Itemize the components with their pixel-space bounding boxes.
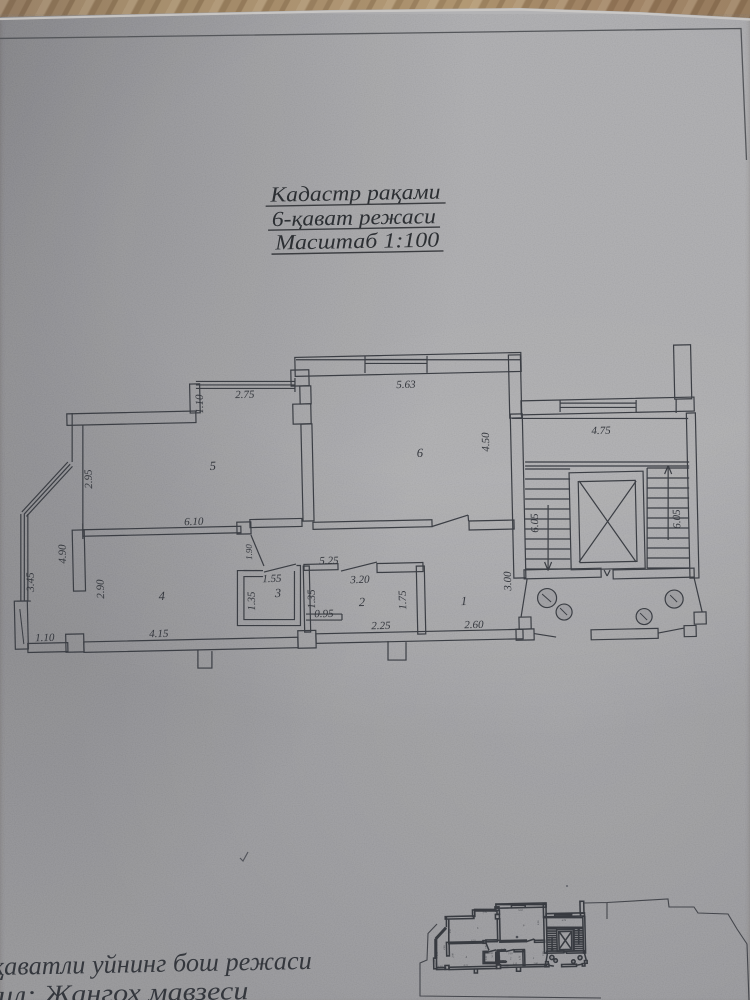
svg-text:зил: Жангох мавзеси: зил: Жангох мавзеси <box>0 976 249 1000</box>
svg-text:5: 5 <box>210 459 217 473</box>
svg-text:қаватли уйнинг бош режаси: қаватли уйнинг бош режаси <box>0 946 312 981</box>
svg-text:3.00: 3.00 <box>502 571 514 592</box>
svg-text:4.50: 4.50 <box>480 432 492 452</box>
svg-text:2.90: 2.90 <box>95 579 107 599</box>
svg-text:6.05: 6.05 <box>671 509 683 529</box>
svg-text:1.10: 1.10 <box>194 394 206 414</box>
svg-text:3.45: 3.45 <box>25 572 37 593</box>
svg-text:2.60: 2.60 <box>464 619 484 631</box>
svg-text:2: 2 <box>359 595 366 609</box>
svg-text:2.75: 2.75 <box>235 389 255 401</box>
svg-text:0.95: 0.95 <box>314 608 334 620</box>
svg-text:1.35: 1.35 <box>246 591 258 611</box>
svg-text:4.90: 4.90 <box>57 544 69 564</box>
svg-text:2.25: 2.25 <box>371 620 391 632</box>
svg-text:6: 6 <box>417 446 424 460</box>
svg-text:1.90: 1.90 <box>485 945 487 949</box>
svg-text:Масштаб 1:100: Масштаб 1:100 <box>274 228 440 255</box>
svg-text:Кадастр рақами: Кадастр рақами <box>269 180 441 207</box>
svg-text:3.20: 3.20 <box>349 574 370 586</box>
svg-text:4: 4 <box>159 589 166 603</box>
svg-text:1.35: 1.35 <box>306 589 318 609</box>
svg-text:4.15: 4.15 <box>149 628 169 640</box>
svg-text:1: 1 <box>461 594 468 608</box>
svg-text:4.75: 4.75 <box>591 425 611 437</box>
svg-text:6.05: 6.05 <box>529 513 541 533</box>
svg-text:5.25: 5.25 <box>319 555 339 567</box>
svg-text:1.10: 1.10 <box>35 632 55 644</box>
svg-text:1.55: 1.55 <box>262 573 282 585</box>
svg-text:1.90: 1.90 <box>244 544 254 560</box>
svg-text:5.63: 5.63 <box>396 379 416 391</box>
svg-text:2.95: 2.95 <box>83 469 95 489</box>
svg-text:3: 3 <box>274 586 282 600</box>
svg-text:6.10: 6.10 <box>184 516 204 528</box>
svg-text:1.75: 1.75 <box>397 590 409 610</box>
